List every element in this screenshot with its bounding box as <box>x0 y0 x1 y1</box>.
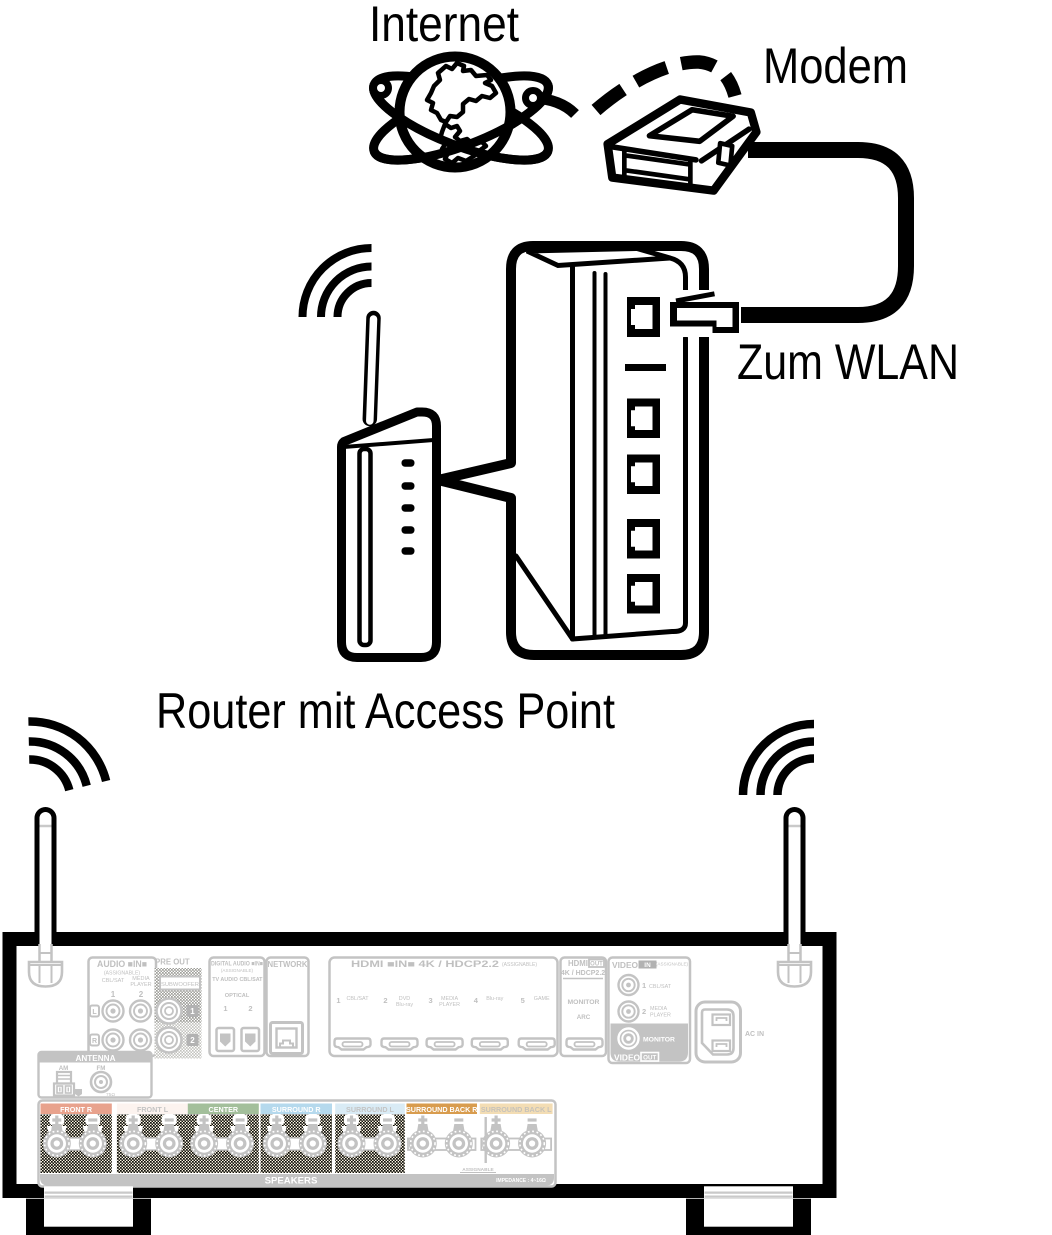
svg-text:AC IN: AC IN <box>745 1031 764 1038</box>
svg-text:1: 1 <box>223 1004 227 1013</box>
svg-text:VIDEO: VIDEO <box>612 960 639 970</box>
svg-text:DVD: DVD <box>399 996 410 1002</box>
svg-text:SUBWOOFER: SUBWOOFER <box>161 982 199 988</box>
svg-text:MONITOR: MONITOR <box>643 1037 675 1044</box>
svg-text:SURROUND BACK L: SURROUND BACK L <box>481 1105 552 1114</box>
svg-text:CBL/SAT: CBL/SAT <box>240 977 264 983</box>
svg-text:FRONT L: FRONT L <box>137 1105 169 1114</box>
svg-text:FRONT R: FRONT R <box>60 1105 93 1114</box>
svg-text:Zum WLAN: Zum WLAN <box>737 334 959 390</box>
svg-text:HDMI: HDMI <box>568 959 588 968</box>
svg-text:2: 2 <box>139 990 144 999</box>
svg-text:GAME: GAME <box>534 996 550 1002</box>
svg-text:OPTICAL: OPTICAL <box>225 993 250 999</box>
svg-text:CBL/SAT: CBL/SAT <box>649 984 672 990</box>
svg-text:IMPEDANCE : 4~16Ω: IMPEDANCE : 4~16Ω <box>496 1178 546 1184</box>
svg-text:PLAYER: PLAYER <box>130 982 151 988</box>
svg-text:2: 2 <box>383 996 387 1005</box>
svg-text:MEDIA: MEDIA <box>650 1006 667 1012</box>
svg-text:NETWORK: NETWORK <box>268 959 309 969</box>
svg-text:AUDIO ■IN■: AUDIO ■IN■ <box>97 959 147 969</box>
svg-text:DIGITAL AUDIO ■IN■: DIGITAL AUDIO ■IN■ <box>211 961 263 968</box>
svg-text:HDMI ■IN■ 4K / HDCP2.2: HDMI ■IN■ 4K / HDCP2.2 <box>351 959 499 969</box>
svg-text:ARC: ARC <box>577 1014 591 1021</box>
svg-text:OUT: OUT <box>643 1055 656 1062</box>
svg-text:MONITOR: MONITOR <box>568 999 600 1006</box>
svg-text:5: 5 <box>521 996 525 1005</box>
svg-text:Modem: Modem <box>763 38 908 94</box>
svg-text:1: 1 <box>190 1007 195 1016</box>
svg-text:VIDEO: VIDEO <box>614 1053 641 1063</box>
svg-text:75Ω: 75Ω <box>106 1092 115 1098</box>
svg-text:TV AUDIO: TV AUDIO <box>212 977 238 983</box>
svg-text:(ASSIGNABLE): (ASSIGNABLE) <box>221 968 254 973</box>
svg-text:Internet: Internet <box>369 0 519 52</box>
svg-text:R: R <box>92 1038 97 1045</box>
svg-text:4K / HDCP2.2: 4K / HDCP2.2 <box>561 970 605 977</box>
svg-text:Router mit Access Point: Router mit Access Point <box>156 683 615 739</box>
svg-text:IN: IN <box>644 962 651 969</box>
svg-text:2: 2 <box>642 1007 646 1016</box>
svg-text:1: 1 <box>336 996 340 1005</box>
svg-text:SURROUND R: SURROUND R <box>272 1105 322 1114</box>
svg-text:SURROUND L: SURROUND L <box>346 1105 395 1114</box>
svg-text:ANTENNA: ANTENNA <box>75 1054 115 1063</box>
svg-text:Blu-ray: Blu-ray <box>396 1002 413 1008</box>
svg-text:PRE OUT: PRE OUT <box>155 958 190 967</box>
svg-text:1: 1 <box>111 990 116 999</box>
svg-text:OUT: OUT <box>590 962 603 968</box>
svg-text:SURROUND BACK R: SURROUND BACK R <box>406 1105 478 1114</box>
svg-text:CBL/SAT: CBL/SAT <box>102 978 125 984</box>
svg-text:PLAYER: PLAYER <box>650 1013 671 1019</box>
svg-text:L: L <box>92 1009 97 1016</box>
svg-text:2: 2 <box>190 1036 195 1045</box>
svg-text:3: 3 <box>429 996 433 1005</box>
svg-text:MEDIA: MEDIA <box>441 996 458 1002</box>
svg-text:Blu-ray: Blu-ray <box>486 996 503 1002</box>
svg-text:PLAYER: PLAYER <box>439 1002 460 1008</box>
svg-text:1: 1 <box>642 981 646 990</box>
svg-text:(ASSIGNABLE): (ASSIGNABLE) <box>656 962 689 967</box>
svg-text:CBL/SAT: CBL/SAT <box>346 996 369 1002</box>
svg-text:CENTER: CENTER <box>209 1105 239 1114</box>
svg-text:(ASSIGNABLE): (ASSIGNABLE) <box>502 962 537 968</box>
svg-text:SPEAKERS: SPEAKERS <box>265 1176 318 1187</box>
svg-text:2: 2 <box>248 1004 252 1013</box>
